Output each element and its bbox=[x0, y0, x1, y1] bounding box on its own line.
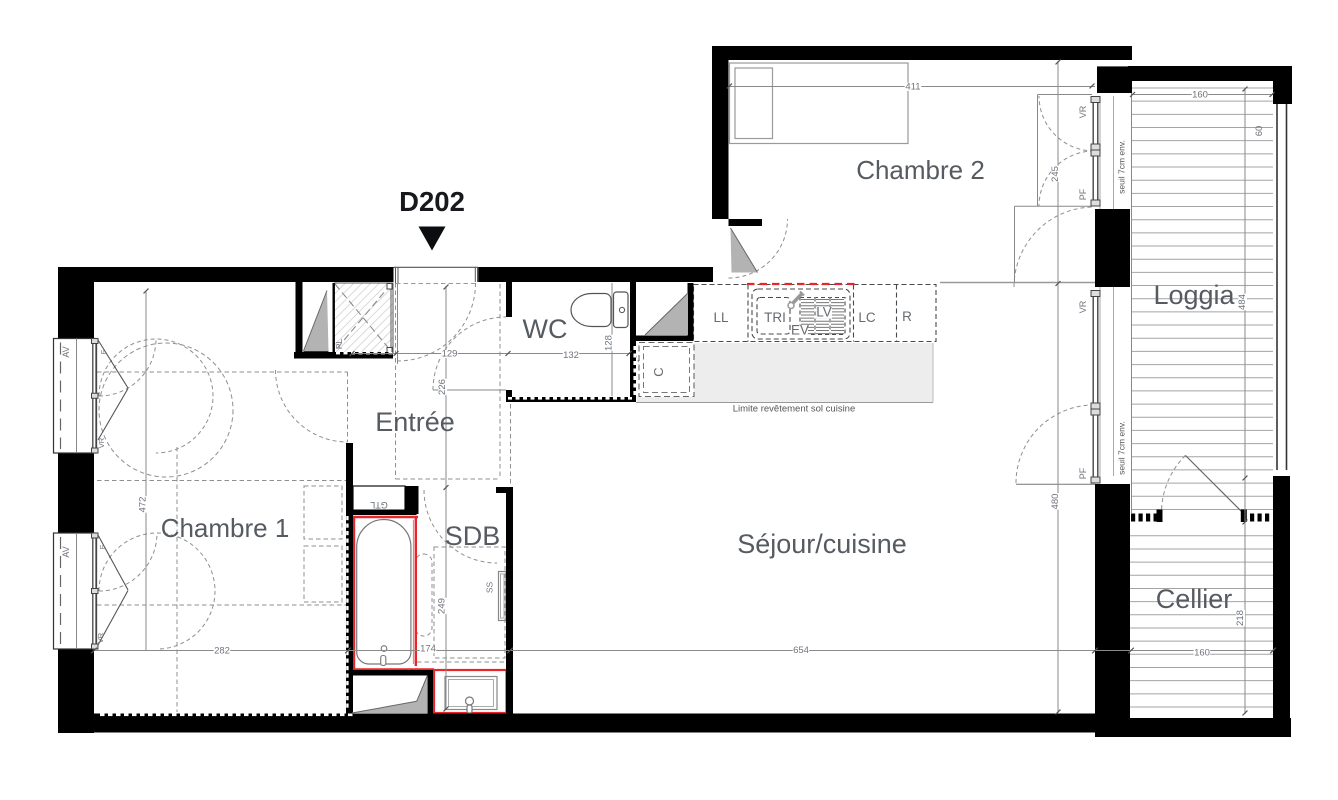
svg-text:VR: VR bbox=[1078, 300, 1088, 313]
svg-text:PF: PF bbox=[1078, 467, 1088, 479]
svg-text:AV: AV bbox=[61, 346, 71, 357]
svg-text:654: 654 bbox=[793, 645, 809, 656]
svg-text:LC: LC bbox=[858, 310, 876, 325]
svg-text:TRI: TRI bbox=[764, 310, 786, 325]
svg-text:282: 282 bbox=[214, 646, 230, 657]
svg-text:174: 174 bbox=[420, 644, 436, 655]
svg-text:Limite revêtement sol cuisine: Limite revêtement sol cuisine bbox=[733, 404, 856, 415]
svg-text:PF: PF bbox=[1078, 188, 1088, 200]
svg-text:484: 484 bbox=[1237, 294, 1248, 310]
svg-text:LL: LL bbox=[713, 310, 729, 325]
svg-text:160: 160 bbox=[1192, 90, 1208, 101]
svg-text:VR: VR bbox=[96, 632, 105, 643]
svg-text:seuil 7cm env.: seuil 7cm env. bbox=[1117, 421, 1127, 475]
svg-text:480: 480 bbox=[1050, 494, 1061, 510]
svg-text:AV: AV bbox=[61, 546, 71, 557]
svg-text:Loggia: Loggia bbox=[1153, 280, 1235, 310]
svg-text:Entrée: Entrée bbox=[375, 407, 455, 437]
svg-text:60: 60 bbox=[1254, 126, 1265, 137]
svg-text:160: 160 bbox=[1194, 648, 1210, 659]
svg-text:PL: PL bbox=[334, 339, 344, 350]
svg-text:472: 472 bbox=[138, 497, 149, 513]
svg-text:Séjour/cuisine: Séjour/cuisine bbox=[737, 529, 907, 559]
svg-text:226: 226 bbox=[437, 379, 448, 395]
svg-text:Chambre 2: Chambre 2 bbox=[856, 155, 985, 185]
svg-text:VR: VR bbox=[1078, 105, 1088, 118]
svg-text:seuil 7cm env.: seuil 7cm env. bbox=[1117, 140, 1127, 194]
svg-text:128: 128 bbox=[604, 335, 615, 351]
svg-text:Chambre 1: Chambre 1 bbox=[161, 513, 290, 543]
svg-text:LV: LV bbox=[816, 305, 832, 320]
svg-text:VR: VR bbox=[97, 437, 106, 448]
svg-text:R: R bbox=[902, 309, 912, 324]
svg-text:F: F bbox=[98, 544, 107, 549]
svg-text:411: 411 bbox=[905, 82, 920, 93]
svg-text:Cellier: Cellier bbox=[1156, 584, 1233, 614]
svg-text:129: 129 bbox=[442, 349, 458, 360]
svg-text:D202: D202 bbox=[399, 186, 465, 217]
svg-text:249: 249 bbox=[437, 598, 448, 614]
svg-text:GTL: GTL bbox=[370, 500, 388, 510]
svg-text:C: C bbox=[651, 367, 666, 376]
svg-text:SDB: SDB bbox=[445, 521, 501, 551]
svg-text:132: 132 bbox=[563, 350, 579, 361]
svg-text:218: 218 bbox=[1235, 610, 1246, 626]
svg-text:SS: SS bbox=[485, 582, 495, 594]
svg-text:F: F bbox=[99, 349, 108, 354]
svg-text:EV: EV bbox=[791, 323, 809, 338]
svg-text:245: 245 bbox=[1050, 166, 1061, 182]
svg-text:WC: WC bbox=[523, 314, 568, 344]
